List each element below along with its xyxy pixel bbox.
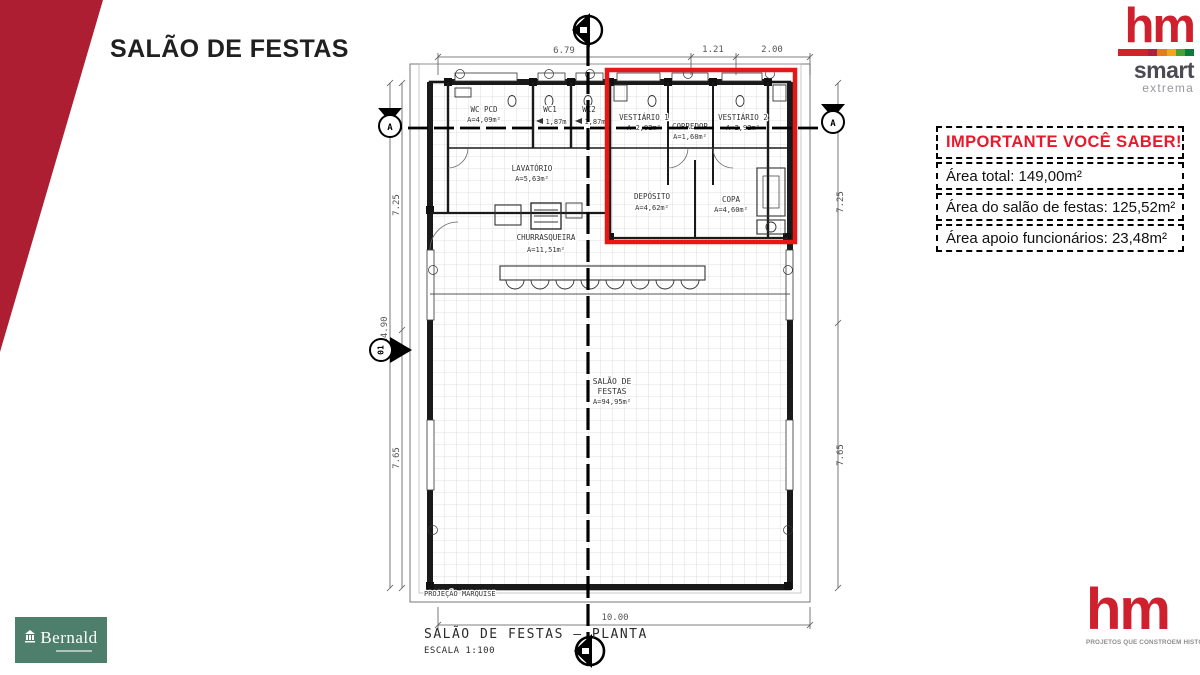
dim-left-upper: 7.25 [392, 194, 402, 216]
room-copa-name: COPA [722, 195, 741, 204]
hm-wordmark: hm [1086, 584, 1196, 636]
dim-right-lower: 7.65 [836, 444, 846, 466]
room-corredor-name: CORREDOR [672, 122, 709, 131]
info-item-hall-area: Área do salão de festas: 125,52m² [936, 193, 1184, 221]
bernald-tagline-bar [56, 650, 92, 652]
building-icon [24, 629, 36, 648]
dim-left-lower: 7.65 [392, 447, 402, 469]
dim-top-3: 2.00 [761, 45, 783, 55]
room-wcpcd-name: WC PCD [470, 105, 498, 114]
info-item-staff-area: Área apoio funcionários: 23,48m² [936, 224, 1184, 252]
room-deposito-area: A=4,62m² [635, 204, 669, 212]
section-marker-right-label: A [830, 119, 836, 129]
bernald-wordmark: Bernald [40, 628, 97, 648]
room-corredor-area: A=1,68m² [673, 133, 707, 141]
room-churrasqueira-area: A=11,51m² [527, 246, 565, 254]
bernald-logo: Bernald [15, 617, 107, 663]
room-lavatorio-name: LAVATÓRIO [512, 164, 553, 173]
room-salao-area: A=94,95m² [593, 398, 631, 406]
room-vestiario2-name: VESTIÁRIO 2 [718, 113, 768, 122]
section-marker-top [572, 13, 602, 47]
hm-smart-subwordmark: smart [1074, 59, 1194, 82]
plan-caption-title: SALÃO DE FESTAS – PLANTA [424, 626, 648, 642]
room-salao-name2: FESTAS [598, 387, 627, 396]
room-copa-area: A=4,60m² [714, 206, 748, 214]
section-marker-right: A [821, 104, 845, 133]
page-title: SALÃO DE FESTAS [110, 35, 349, 64]
dim-bottom: 10.00 [601, 613, 628, 623]
hm-smart-logo: hm smart extrema [1074, 6, 1194, 95]
room-lavatorio-area: A=5,63m² [515, 175, 549, 183]
room-vestiario1-name: VESTIÁRIO 1 [619, 113, 669, 122]
room-churrasqueira-name: CHURRASQUEIRA [517, 233, 576, 242]
detail-marker-01-label: 01 [377, 345, 386, 355]
section-marker-left: A [378, 108, 402, 137]
marquise-label: PROJEÇÃO MARQUISE [424, 589, 496, 598]
plan-caption-scale: ESCALA 1:100 [424, 646, 495, 656]
hm-smart-gradient-bar [1118, 49, 1194, 56]
info-heading: IMPORTANTE VOCÊ SABER! [936, 126, 1184, 159]
hm-tagline: PROJETOS QUE CONSTROEM HISTÓRIAS [1086, 639, 1196, 646]
hm-logo: hm PROJETOS QUE CONSTROEM HISTÓRIAS [1086, 584, 1196, 646]
floor-plan-drawing: WC PCD A=4,09m² WC1 1,87m WC2 1,87m VEST… [0, 0, 1200, 675]
room-salao-name1: SALÃO DE [593, 376, 632, 386]
hm-smart-location: extrema [1074, 82, 1194, 95]
detail-marker-01: 01 [370, 337, 412, 363]
room-wcpcd-area: A=4,09m² [467, 116, 501, 124]
room-wc1-name: WC1 [543, 105, 557, 114]
dim-right-upper: 7.25 [836, 191, 846, 213]
section-marker-left-label: A [387, 123, 393, 133]
info-item-total-area: Área total: 149,00m² [936, 162, 1184, 190]
slide: { "slide": { "title": "SALÃO DE FESTAS" … [0, 0, 1200, 675]
dim-top-2: 1.21 [702, 45, 724, 55]
dim-top-1: 6.79 [553, 46, 575, 56]
room-deposito-name: DEPÓSITO [634, 192, 671, 201]
info-panel: IMPORTANTE VOCÊ SABER! Área total: 149,0… [936, 126, 1184, 255]
hm-smart-wordmark: hm [1074, 6, 1194, 46]
room-wc1-area: 1,87m [545, 118, 566, 126]
